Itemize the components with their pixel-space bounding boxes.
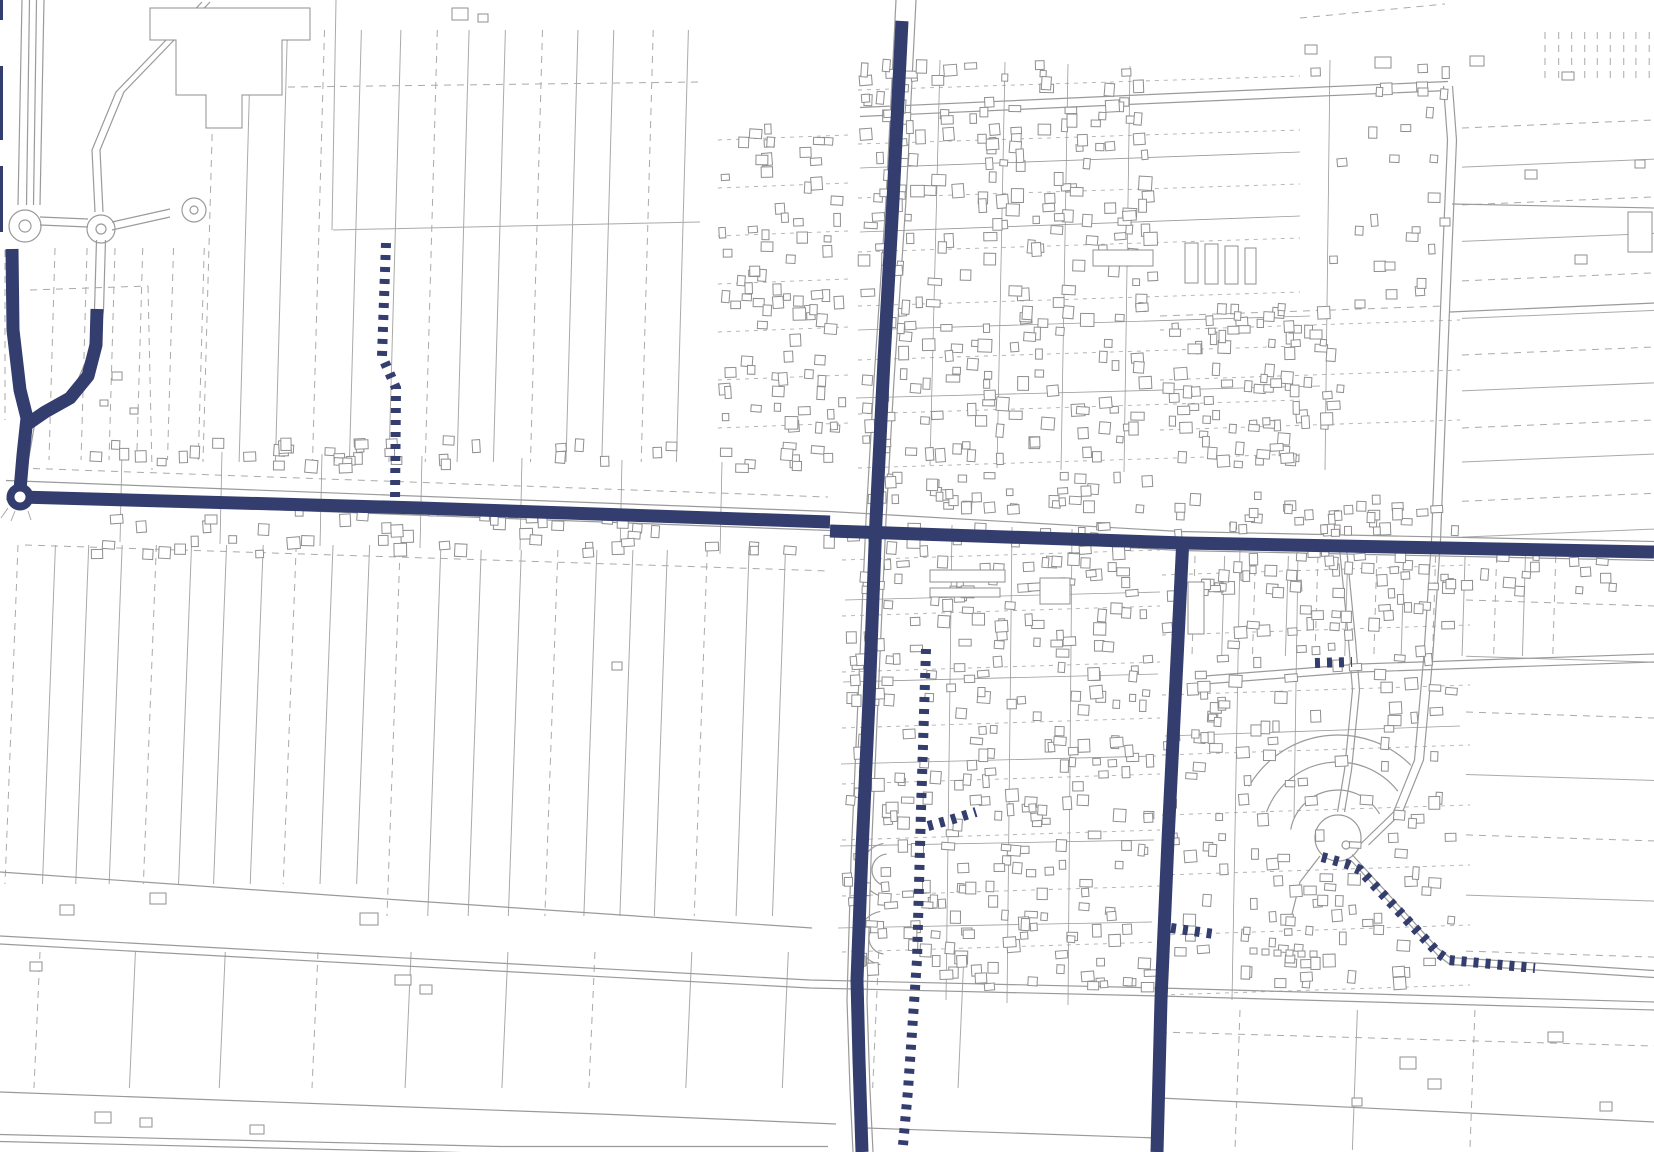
topographic-map: [0, 0, 1654, 1152]
route-junction-node: [7, 484, 34, 511]
map-canvas: [0, 0, 1654, 1152]
map-viewport[interactable]: [0, 0, 1654, 1152]
